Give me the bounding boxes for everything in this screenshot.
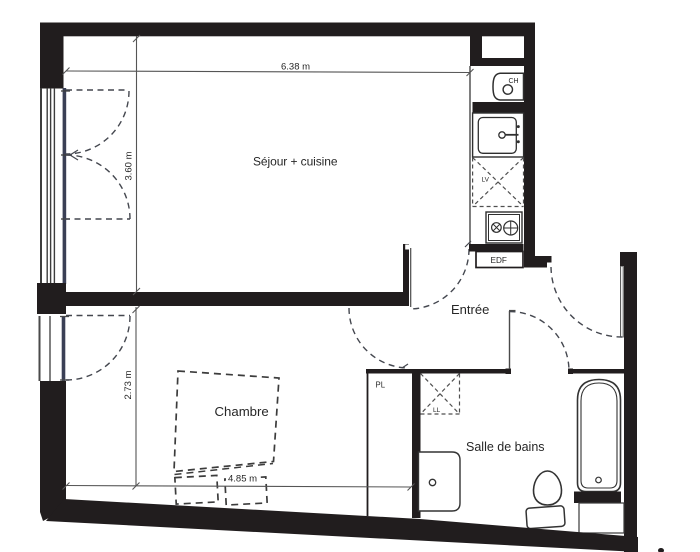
svg-text:LL: LL	[433, 407, 441, 414]
svg-text:6.38 m: 6.38 m	[281, 62, 310, 73]
svg-text:3.60 m: 3.60 m	[124, 151, 135, 180]
svg-text:Entrée: Entrée	[451, 302, 489, 317]
svg-text:PL: PL	[376, 380, 386, 389]
svg-text:4.85 m: 4.85 m	[228, 474, 257, 485]
svg-text:Chambre: Chambre	[215, 404, 269, 419]
svg-text:LV: LV	[482, 177, 490, 184]
svg-text:Séjour + cuisine: Séjour + cuisine	[253, 155, 338, 169]
svg-text:2.73 m: 2.73 m	[123, 370, 134, 399]
svg-text:CH: CH	[509, 78, 519, 85]
svg-text:EDF: EDF	[491, 256, 507, 265]
svg-text:Salle de bains: Salle de bains	[466, 440, 545, 454]
